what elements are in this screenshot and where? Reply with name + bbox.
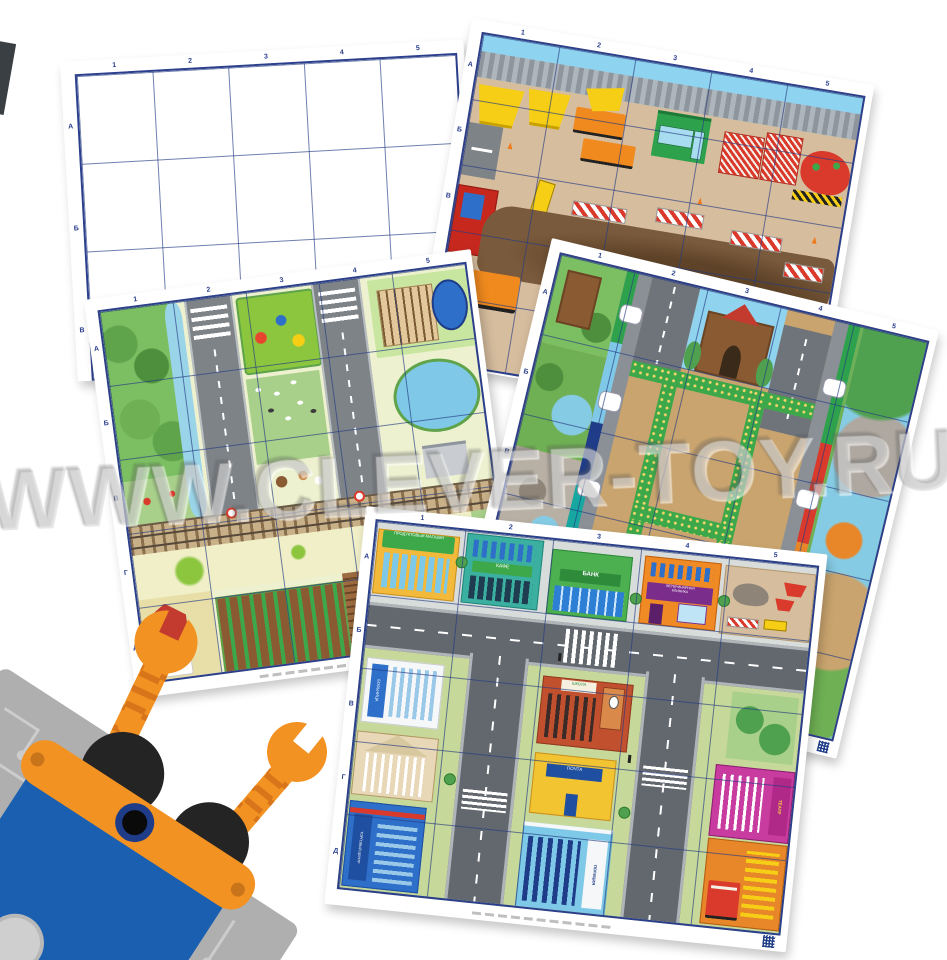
scissor-lift [760,132,804,186]
road-dash [213,349,235,504]
road-vertical-right [620,672,704,923]
school-windows [543,693,596,742]
bus-stop [422,441,470,479]
sheep-pasture [246,370,330,465]
theater-windows [717,774,765,833]
traffic-cone [812,236,818,244]
playground [235,288,322,376]
park-trees [726,692,799,765]
construction-lot [719,565,816,642]
dump-truck [579,138,636,169]
fire-truck [704,880,740,922]
police-windows [522,836,582,906]
barrier [726,616,759,629]
city-field: ПРОДУКТОВЫЙ МАГАЗИН КАФЕ БАНК ВЕТЕРИНАРН… [337,519,819,936]
product-photo-canvas: 1 2 3 4 5 А Б В 1 2 3 4 5 А Б В Г Д [0,0,947,960]
qr-code [762,935,775,948]
manor-house [376,284,440,348]
cafe-building: КАФЕ [460,533,544,611]
post-office: ПОЧТА [529,752,616,821]
hospital-windows [388,667,437,721]
sheep [255,387,261,392]
truck-ladder [711,885,737,891]
storefront-windows [468,575,533,605]
gate-roof [722,300,763,327]
gate-arch [718,344,744,379]
road-dash [473,656,501,901]
traffic-cone [507,142,513,150]
zebra-crossing [641,766,687,790]
warning-sign [763,619,787,631]
wrench-hand-left [95,602,207,747]
tipped-skip [586,88,625,111]
city-mat: 1 2 3 4 5 А Б В Г Д ПРОДУКТОВЫЙ МАГАЗИН … [324,506,827,952]
street-tree [617,806,630,819]
theater-sign: ТЕАТР [767,777,792,837]
vet-sign-line2: КЛИНИКА [672,588,689,594]
zebra-crossing [563,629,619,668]
cafe-sign: КАФЕ [472,560,533,577]
road-dash [341,332,363,487]
zebra-crossing [318,287,359,324]
zebra-crossing [190,304,231,341]
bank-building: БАНК [546,549,634,622]
estate-grounds [367,268,476,359]
theater-building: ТЕАТР [709,764,795,844]
clock-face [608,696,619,710]
police-station: ПОЛИЦИЯ [515,822,614,916]
traffic-light [628,755,632,763]
zebra-crossing [461,789,507,813]
pond [389,353,485,437]
road-vertical-left [444,653,528,904]
cabin-window [657,124,694,149]
storefront-windows [380,552,450,593]
background-object-edge [0,41,16,115]
clock-tower [599,687,625,731]
farm-animals [258,458,335,501]
school-building: ШКОЛА [536,676,633,753]
street-tree [443,773,456,786]
vet-clinic: ВЕТЕРИНАРНАЯ КЛИНИКА [638,555,722,631]
wheelbarrow [783,582,807,598]
barrier [655,207,705,230]
wheelbarrow [774,598,795,612]
post-door [563,793,578,817]
road-dash [656,287,676,364]
police-sign: ПОЛИЦИЯ [581,839,608,910]
site-cabin [651,110,712,164]
yellow-skip [523,89,571,131]
traffic-cone [697,197,703,205]
post-sign: ПОЧТА [546,763,603,782]
rubble-pile [732,582,770,608]
container-panel [460,192,485,220]
road-stub [460,122,503,180]
clinic-window [677,603,707,625]
upper-windows [472,540,536,563]
station-windows [740,851,779,920]
road-dash [471,147,492,153]
grocery-store: ПРОДУКТОВЫЙ МАГАЗИН [372,529,460,602]
upper-windows [650,562,714,583]
road-dash [649,675,677,920]
crane-truck [572,107,626,141]
bank-sign: БАНК [560,568,621,587]
school-sign: ШКОЛА [561,680,597,694]
scissor-lift [718,131,765,179]
storefront-windows [552,585,624,617]
cartoon-robot [0,580,380,960]
fire-station [700,837,788,931]
treehouse [556,270,602,330]
clinic-door [648,603,664,624]
qr-code [817,740,830,753]
